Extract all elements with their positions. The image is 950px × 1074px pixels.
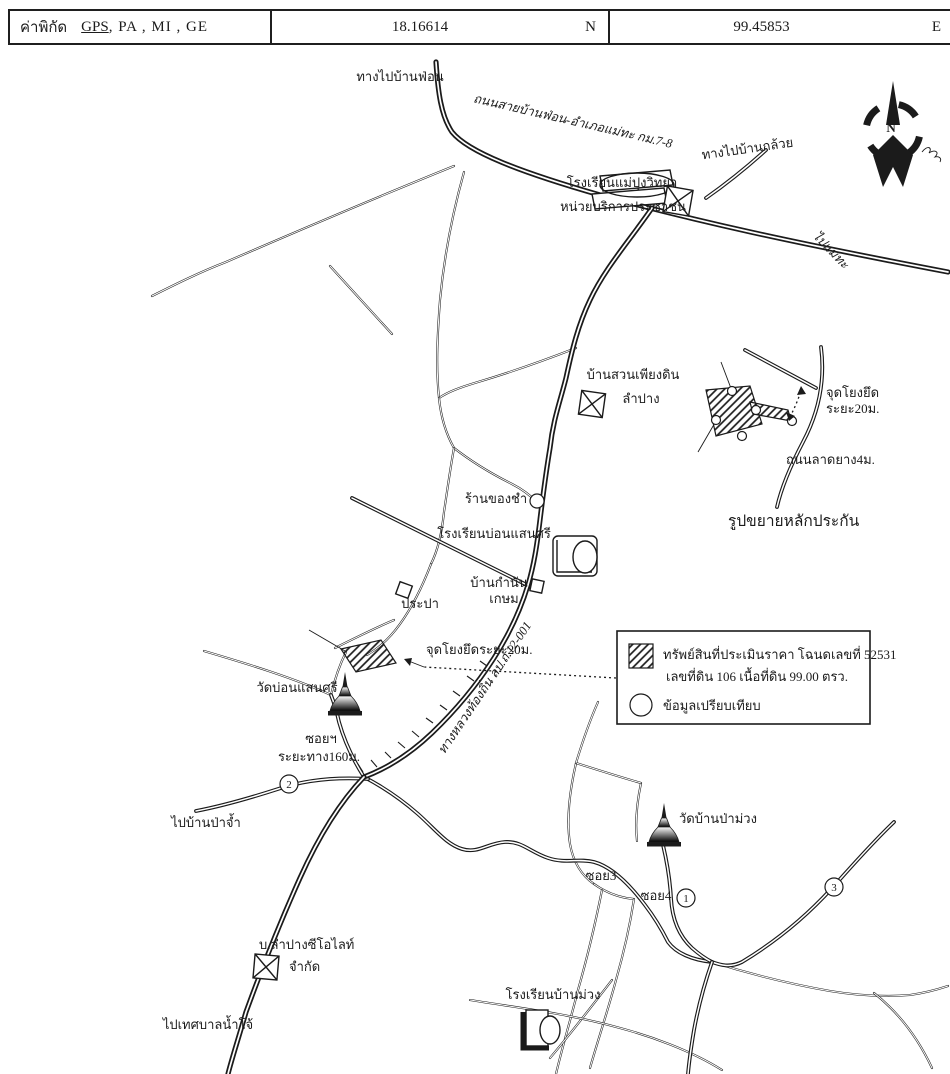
label-school-ban-muang: โรงเรียนบ้านม่วง bbox=[506, 987, 601, 1002]
label-kamnan-line1: บ้านกำนัน bbox=[470, 575, 527, 590]
svg-text:2: 2 bbox=[286, 779, 292, 791]
inset-anchor-line1: จุดโยงยึด bbox=[826, 385, 879, 401]
ban-suan-building-icon bbox=[578, 390, 605, 417]
label-soi-line1: ซอยฯ bbox=[305, 731, 337, 746]
label-ban-suan-line1: บ้านสวนเพียงดิน bbox=[587, 367, 680, 382]
survey-map-page: ทรัพย์สินที่ประเมินราคา โฉนดเลขที่ 52531… bbox=[0, 0, 950, 1074]
legend-property-line2: เลขที่ดิน 106 เนื้อที่ดิน 99.00 ตรว. bbox=[666, 667, 848, 684]
label-soi3: ซอย3 bbox=[586, 868, 617, 883]
coordinate-method-cell: ค่าพิกัด GPS , PA , MI , GE bbox=[10, 11, 272, 43]
label-soi4: ซอย4 bbox=[641, 888, 672, 903]
longitude-cell: 99.45853 E bbox=[610, 11, 950, 43]
label-wat-bon-saen-si: วัดบ่อนแสนศรี bbox=[256, 680, 337, 695]
label-ban-suan-line2: ลำปาง bbox=[622, 391, 659, 406]
legend-box: ทรัพย์สินที่ประเมินราคา โฉนดเลขที่ 52531… bbox=[617, 631, 897, 724]
label-soi-line2: ระยะทาง160ม. bbox=[278, 749, 360, 764]
school-bon-saen-si-building bbox=[553, 536, 597, 576]
label-to-ban-pa-cham: ไปบ้านป่าจ้ำ bbox=[170, 813, 241, 830]
legend-comparison-label: ข้อมูลเปรียบเทียบ bbox=[663, 698, 761, 714]
svg-text:1: 1 bbox=[683, 893, 689, 905]
label-school-mae-pung: โรงเรียนแม่ปุงวิทยา bbox=[567, 175, 678, 191]
label-zeolite-line2: จำกัด bbox=[289, 959, 320, 974]
compass-north-label: N bbox=[886, 120, 896, 135]
svg-text:3: 3 bbox=[831, 882, 837, 894]
legend-property-line1: ทรัพย์สินที่ประเมินราคา โฉนดเลขที่ 52531 bbox=[663, 646, 897, 662]
longitude-direction: E bbox=[932, 19, 941, 36]
zeolite-company-icon bbox=[253, 954, 279, 980]
marker-3: 3 bbox=[825, 878, 843, 896]
label-waterworks: ประปา bbox=[401, 596, 439, 611]
coordinate-field-label: ค่าพิกัด bbox=[20, 15, 67, 39]
grocery-circle-icon bbox=[530, 494, 544, 508]
legend-comparison-circle bbox=[630, 694, 652, 716]
label-to-ban-fon: ทางไปบ้านฟ่อน bbox=[356, 69, 443, 84]
marker-1: 1 bbox=[677, 889, 695, 907]
kamnan-house-icon bbox=[530, 579, 544, 593]
latitude-cell: 18.16614 N bbox=[272, 11, 610, 43]
latitude-direction: N bbox=[585, 19, 596, 36]
label-to-nam-cho: ไปเทศบาลน้ำโจ้ bbox=[162, 1015, 253, 1032]
label-service-unit: หน่วยบริการประชาชน bbox=[560, 199, 686, 214]
legend-hatch-swatch bbox=[629, 644, 653, 668]
hand-drawn-map: ทรัพย์สินที่ประเมินราคา โฉนดเลขที่ 52531… bbox=[0, 0, 950, 1074]
label-school-bon-saen-si: โรงเรียนบ่อนแสนศรี bbox=[437, 526, 551, 541]
gps-method-label: GPS bbox=[81, 19, 109, 36]
label-grocery: ร้านของชำ bbox=[465, 491, 527, 506]
other-methods-label: , PA , MI , GE bbox=[109, 19, 208, 36]
inset-title: รูปขยายหลักประกัน bbox=[728, 513, 860, 531]
label-kamnan-line2: เกษม bbox=[489, 591, 518, 606]
marker-2: 2 bbox=[280, 775, 298, 793]
gps-coordinate-header: ค่าพิกัด GPS , PA , MI , GE 18.16614 N 9… bbox=[8, 9, 950, 45]
longitude-value: 99.45853 bbox=[610, 19, 913, 36]
latitude-value: 18.16614 bbox=[272, 19, 568, 36]
label-wat-ban-pa-muang: วัดบ้านป่าม่วง bbox=[679, 811, 757, 826]
inset-anchor-line2: ระยะ20ม. bbox=[826, 401, 879, 416]
label-zeolite-line1: บ.ลำปางซีโอไลท์ bbox=[259, 937, 354, 952]
inset-paved-road-label: ถนนลาดยาง4ม. bbox=[786, 452, 875, 467]
